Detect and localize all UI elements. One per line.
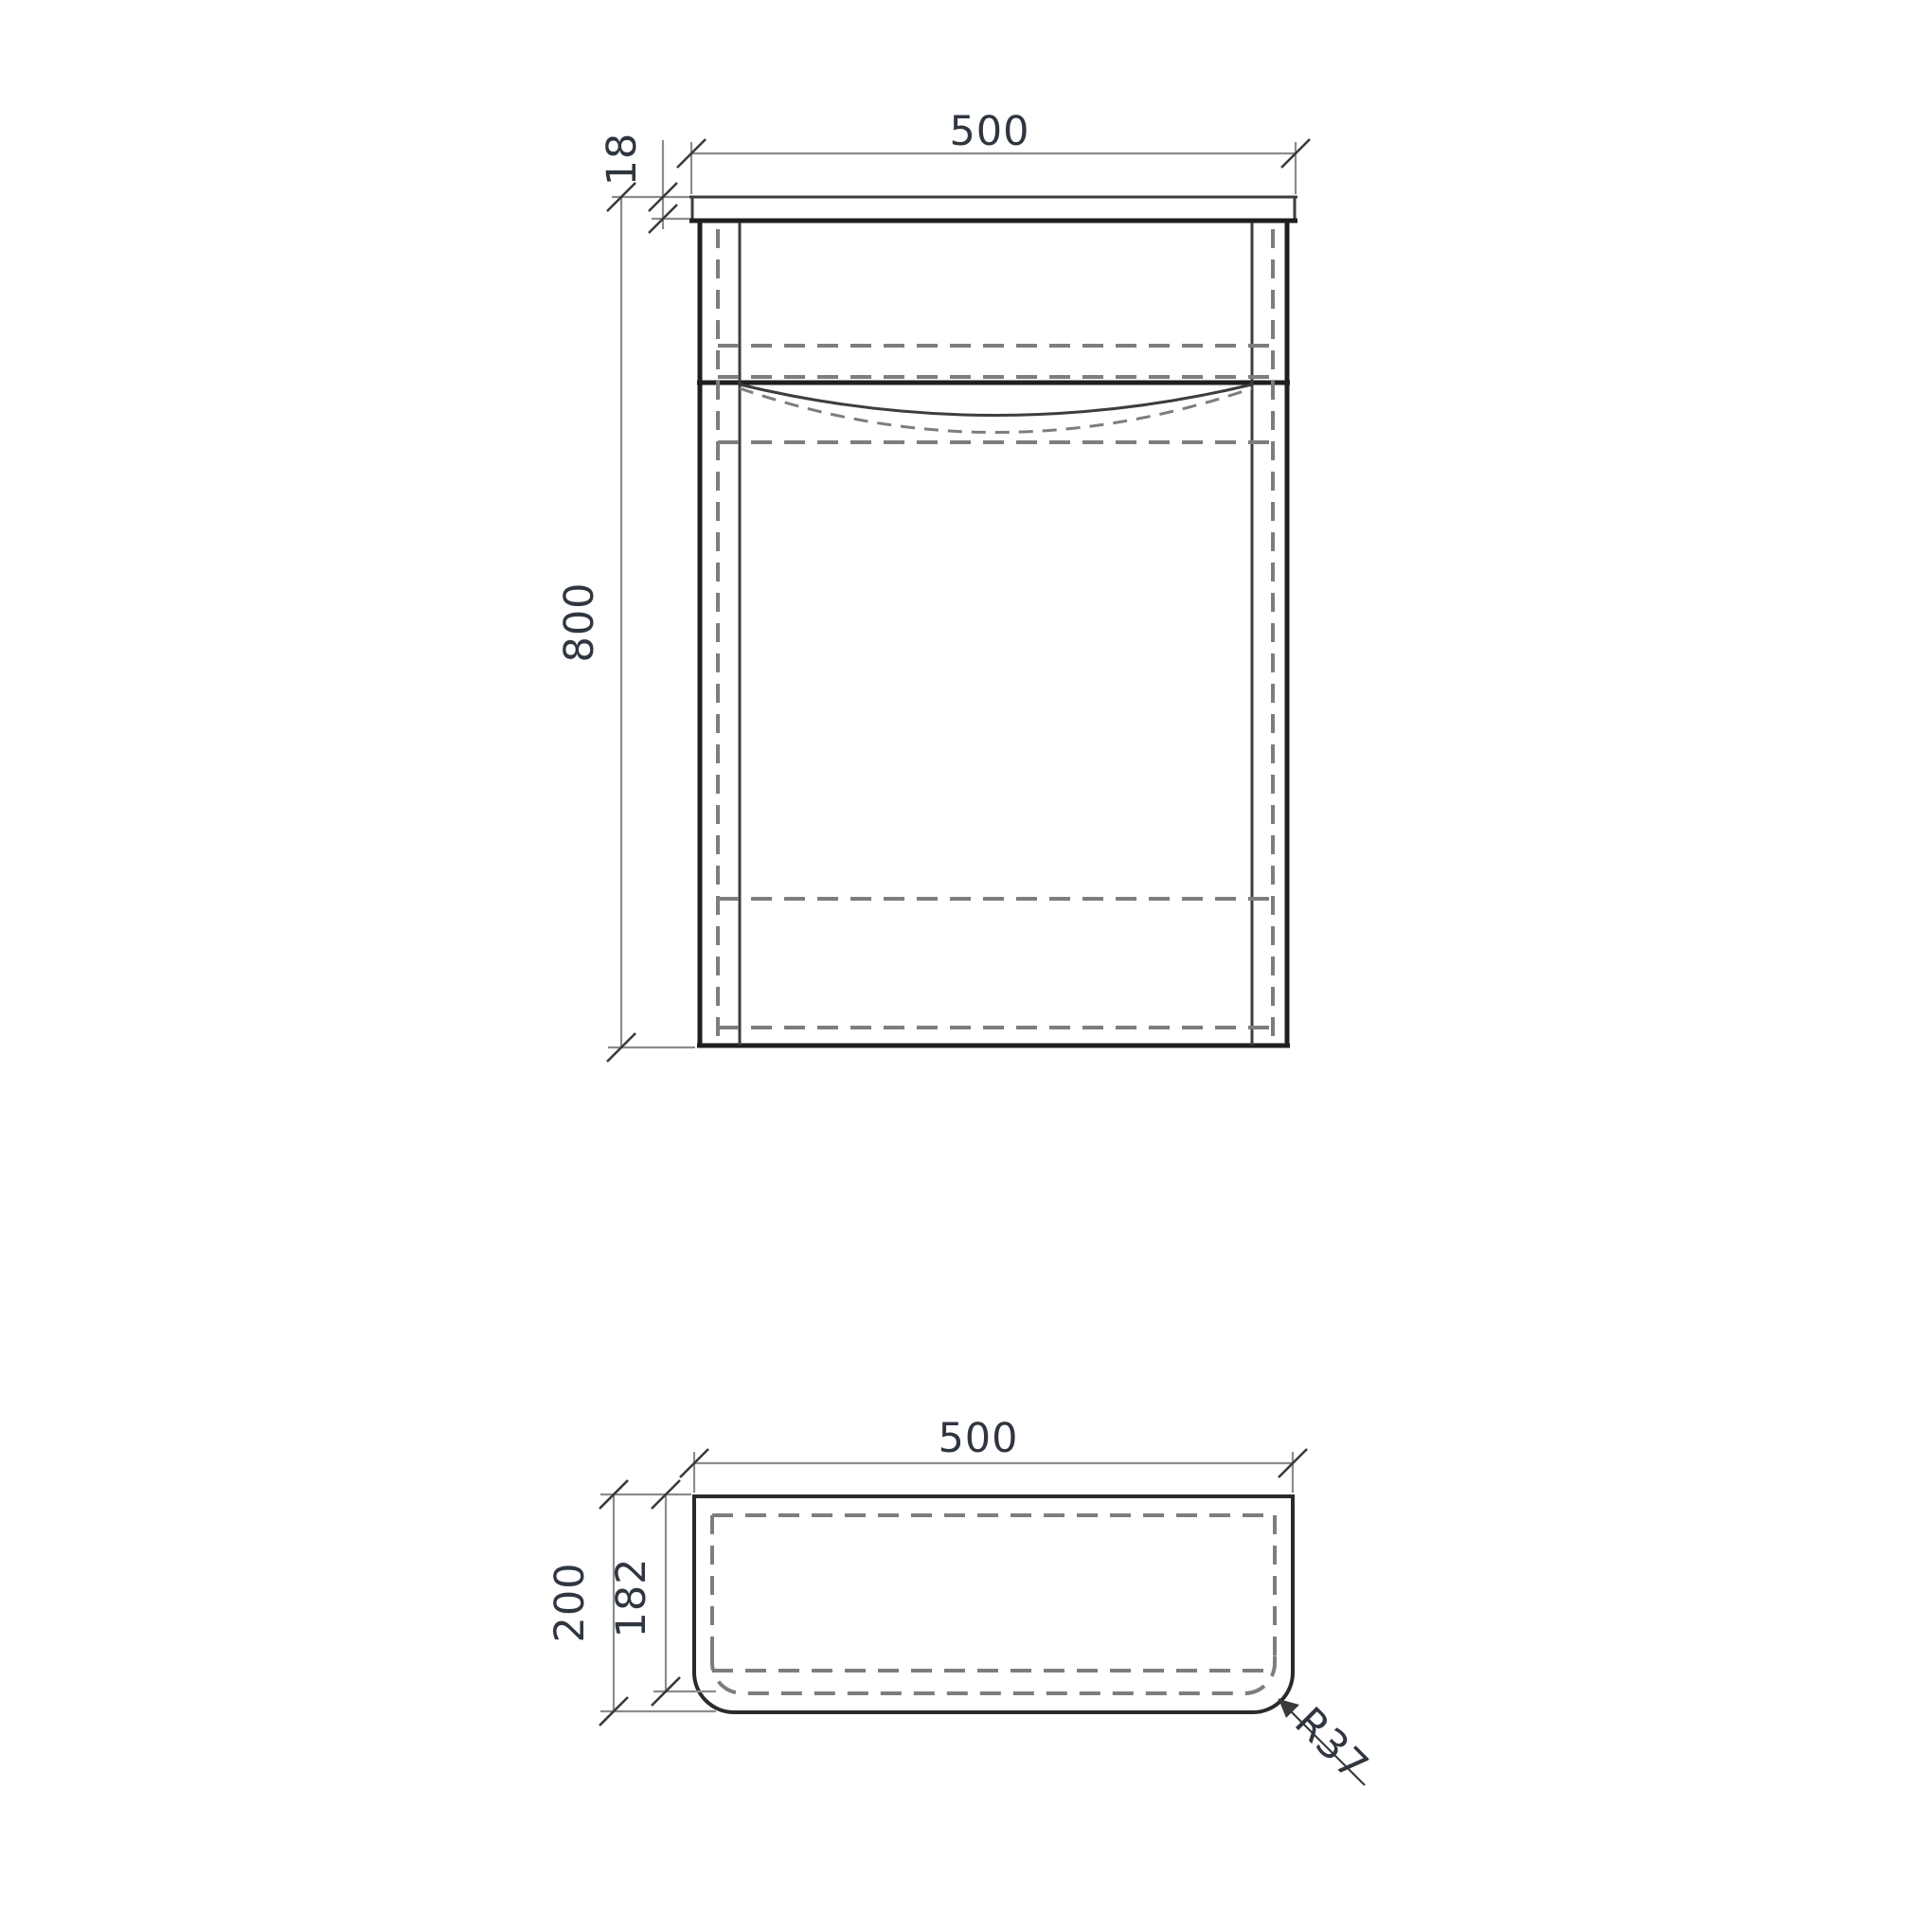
technical-drawing: 500 18 800 (0, 0, 1932, 1932)
front-width-label: 500 (949, 108, 1029, 155)
front-height-label: 800 (556, 581, 603, 662)
front-top-thickness-label: 18 (599, 133, 646, 187)
plan-width-label: 500 (938, 1415, 1018, 1462)
drawing-background (0, 0, 1932, 1932)
plan-inner-depth-label: 182 (608, 1557, 655, 1637)
drawing-canvas: 500 18 800 (0, 0, 1932, 1932)
plan-depth-label: 200 (546, 1562, 594, 1642)
